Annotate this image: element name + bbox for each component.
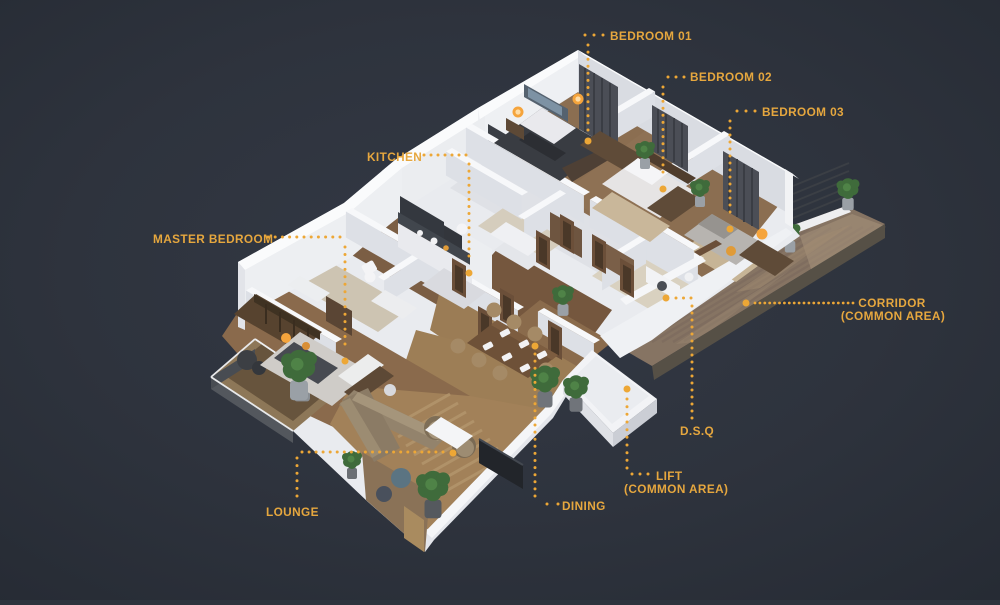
svg-text:BEDROOM 03: BEDROOM 03 — [762, 105, 844, 119]
svg-text:CORRIDOR: CORRIDOR — [858, 296, 926, 310]
svg-text:MASTER BEDROOM: MASTER BEDROOM — [153, 232, 273, 246]
svg-text:(COMMON AREA): (COMMON AREA) — [624, 482, 728, 496]
svg-text:KITCHEN: KITCHEN — [367, 150, 422, 164]
svg-text:BEDROOM 02: BEDROOM 02 — [690, 70, 772, 84]
svg-text:D.S.Q: D.S.Q — [680, 424, 714, 438]
svg-text:LIFT: LIFT — [656, 469, 683, 483]
svg-text:(COMMON AREA): (COMMON AREA) — [841, 309, 945, 323]
svg-text:BEDROOM 01: BEDROOM 01 — [610, 29, 692, 43]
svg-text:DINING: DINING — [562, 499, 606, 513]
svg-text:LOUNGE: LOUNGE — [266, 505, 319, 519]
